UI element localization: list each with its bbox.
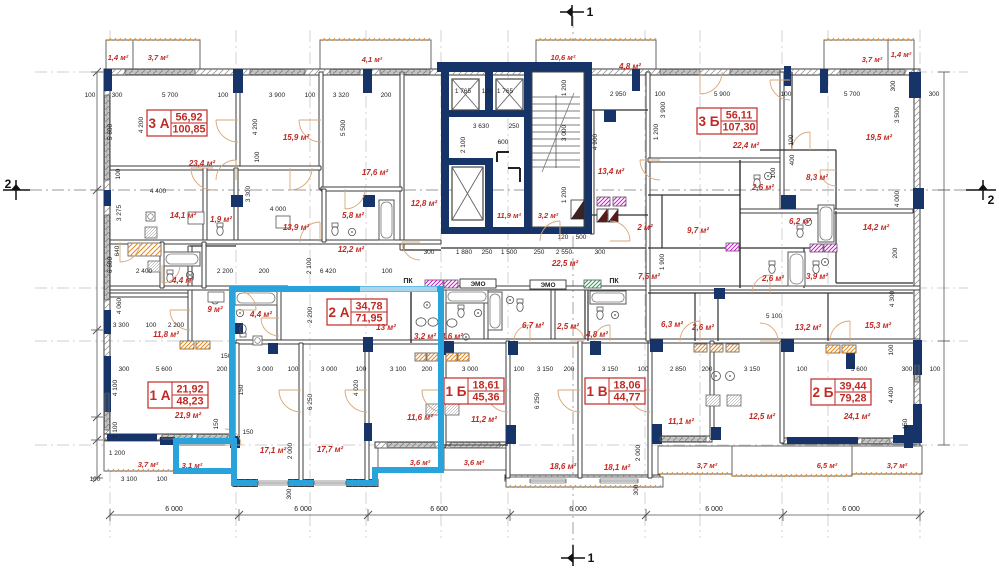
svg-text:13,2 м²: 13,2 м² bbox=[795, 323, 822, 332]
svg-text:1 200: 1 200 bbox=[653, 123, 660, 140]
svg-text:6 420: 6 420 bbox=[320, 268, 337, 275]
svg-text:100: 100 bbox=[305, 92, 316, 99]
svg-text:ПК: ПК bbox=[403, 278, 413, 285]
svg-text:1 200: 1 200 bbox=[561, 186, 568, 203]
svg-text:3 150: 3 150 bbox=[602, 366, 619, 373]
svg-text:100: 100 bbox=[85, 92, 96, 99]
svg-text:1 880: 1 880 bbox=[456, 249, 473, 256]
svg-text:3,7 м²: 3,7 м² bbox=[148, 53, 169, 62]
svg-text:5 600: 5 600 bbox=[107, 123, 114, 140]
svg-text:15,9 м²: 15,9 м² bbox=[283, 133, 310, 142]
svg-text:3 300: 3 300 bbox=[245, 185, 252, 202]
svg-text:2,6 м²: 2,6 м² bbox=[751, 183, 774, 192]
svg-text:3 Б: 3 Б bbox=[699, 114, 720, 129]
svg-text:6 250: 6 250 bbox=[307, 393, 314, 410]
svg-text:3 150: 3 150 bbox=[744, 366, 761, 373]
svg-text:100,85: 100,85 bbox=[172, 124, 205, 136]
svg-text:150: 150 bbox=[238, 384, 245, 395]
svg-text:2 200: 2 200 bbox=[217, 268, 234, 275]
svg-text:2 950: 2 950 bbox=[610, 91, 627, 98]
svg-text:300: 300 bbox=[424, 249, 435, 256]
svg-text:1,4 м²: 1,4 м² bbox=[108, 53, 129, 62]
svg-text:14,1 м²: 14,1 м² bbox=[170, 211, 197, 220]
svg-text:9,7 м²: 9,7 м² bbox=[687, 226, 709, 235]
svg-text:3 100: 3 100 bbox=[121, 476, 138, 483]
svg-text:13,9 м²: 13,9 м² bbox=[283, 223, 310, 232]
svg-text:4 000: 4 000 bbox=[270, 206, 287, 213]
svg-text:3 А: 3 А bbox=[148, 116, 169, 131]
svg-text:5,8 м²: 5,8 м² bbox=[342, 211, 364, 220]
svg-text:11,6 м²: 11,6 м² bbox=[407, 413, 433, 422]
svg-text:1 900: 1 900 bbox=[659, 253, 666, 270]
svg-text:100: 100 bbox=[514, 366, 525, 373]
svg-text:200: 200 bbox=[217, 366, 228, 373]
svg-text:3 275: 3 275 bbox=[116, 204, 123, 221]
svg-text:17,1 м²: 17,1 м² bbox=[260, 446, 287, 455]
svg-text:2 м²: 2 м² bbox=[636, 223, 653, 232]
svg-text:6 600: 6 600 bbox=[430, 506, 448, 513]
svg-text:6 600: 6 600 bbox=[107, 256, 114, 273]
svg-text:2 550: 2 550 bbox=[556, 249, 573, 256]
svg-text:100: 100 bbox=[482, 88, 493, 95]
svg-text:250: 250 bbox=[482, 249, 493, 256]
svg-text:640: 640 bbox=[114, 245, 121, 256]
svg-text:3 000: 3 000 bbox=[321, 366, 338, 373]
svg-text:4 060: 4 060 bbox=[116, 297, 123, 314]
svg-text:4,1 м²: 4,1 м² bbox=[361, 55, 383, 64]
svg-text:300: 300 bbox=[929, 91, 940, 98]
svg-text:1,4 м²: 1,4 м² bbox=[891, 50, 912, 59]
svg-text:2 А: 2 А bbox=[328, 305, 349, 320]
svg-text:3 900: 3 900 bbox=[269, 92, 286, 99]
svg-text:1 500: 1 500 bbox=[501, 249, 518, 256]
svg-text:4 020: 4 020 bbox=[353, 379, 360, 396]
svg-text:2 Б: 2 Б bbox=[813, 385, 834, 400]
svg-text:300: 300 bbox=[902, 366, 913, 373]
svg-text:6 000: 6 000 bbox=[842, 506, 860, 513]
svg-text:6,3 м²: 6,3 м² bbox=[661, 320, 683, 329]
svg-text:3,6 м²: 3,6 м² bbox=[410, 458, 431, 467]
svg-text:2 100: 2 100 bbox=[306, 257, 313, 274]
svg-text:1 В: 1 В bbox=[586, 384, 607, 399]
svg-text:ЭМО: ЭМО bbox=[540, 282, 555, 289]
svg-text:6 000: 6 000 bbox=[294, 506, 312, 513]
svg-text:4,8 м²: 4,8 м² bbox=[585, 330, 608, 339]
svg-text:18,1 м²: 18,1 м² bbox=[604, 463, 631, 472]
svg-text:4 200: 4 200 bbox=[138, 116, 145, 133]
svg-text:300: 300 bbox=[595, 249, 606, 256]
svg-text:100: 100 bbox=[888, 344, 895, 355]
svg-text:600: 600 bbox=[498, 139, 509, 146]
svg-text:4 300: 4 300 bbox=[889, 290, 896, 307]
svg-text:200: 200 bbox=[422, 366, 433, 373]
svg-text:1 765: 1 765 bbox=[497, 88, 514, 95]
svg-text:2,5 м²: 2,5 м² bbox=[556, 322, 579, 331]
svg-text:3 000: 3 000 bbox=[257, 366, 274, 373]
svg-text:300: 300 bbox=[890, 80, 897, 91]
svg-text:3,9 м²: 3,9 м² bbox=[806, 272, 828, 281]
svg-text:6 250: 6 250 bbox=[534, 392, 541, 409]
svg-text:5 500: 5 500 bbox=[340, 119, 347, 136]
svg-text:11,1 м²: 11,1 м² bbox=[668, 417, 694, 426]
svg-text:12,8 м²: 12,8 м² bbox=[411, 199, 438, 208]
svg-text:400: 400 bbox=[789, 154, 796, 165]
svg-text:3,2 м²: 3,2 м² bbox=[414, 332, 436, 341]
svg-text:3 300: 3 300 bbox=[113, 322, 130, 329]
svg-text:4 400: 4 400 bbox=[150, 188, 167, 195]
svg-text:2 100: 2 100 bbox=[460, 136, 467, 153]
svg-text:500: 500 bbox=[576, 234, 587, 241]
svg-text:4 900: 4 900 bbox=[592, 133, 599, 150]
svg-text:39,44: 39,44 bbox=[839, 381, 866, 393]
svg-text:3 000: 3 000 bbox=[462, 366, 479, 373]
svg-text:100: 100 bbox=[157, 476, 168, 483]
svg-text:5 100: 5 100 bbox=[766, 313, 783, 320]
svg-text:100: 100 bbox=[146, 322, 157, 329]
svg-text:200: 200 bbox=[259, 268, 270, 275]
svg-text:1: 1 bbox=[587, 5, 594, 19]
svg-text:22,4 м²: 22,4 м² bbox=[732, 141, 760, 150]
svg-text:250: 250 bbox=[509, 123, 520, 130]
svg-text:3 630: 3 630 bbox=[473, 123, 490, 130]
svg-text:ПК: ПК bbox=[609, 278, 619, 285]
svg-text:12,2 м²: 12,2 м² bbox=[338, 245, 365, 254]
svg-text:2,6 м²: 2,6 м² bbox=[761, 274, 784, 283]
svg-text:150: 150 bbox=[243, 429, 254, 436]
svg-text:100: 100 bbox=[797, 366, 808, 373]
svg-text:6,5 м²: 6,5 м² bbox=[817, 461, 838, 470]
svg-text:3,7 м²: 3,7 м² bbox=[697, 461, 718, 470]
svg-text:79,28: 79,28 bbox=[839, 393, 866, 405]
svg-text:300: 300 bbox=[633, 484, 640, 495]
svg-text:250: 250 bbox=[534, 249, 545, 256]
svg-text:2 850: 2 850 bbox=[670, 366, 687, 373]
svg-text:100: 100 bbox=[788, 134, 795, 145]
svg-text:1 200: 1 200 bbox=[109, 450, 126, 457]
svg-text:11,9 м²: 11,9 м² bbox=[497, 211, 522, 220]
svg-text:100: 100 bbox=[288, 366, 299, 373]
svg-text:150: 150 bbox=[902, 418, 909, 429]
svg-text:2: 2 bbox=[5, 177, 12, 191]
svg-text:100: 100 bbox=[356, 366, 367, 373]
svg-text:6,7 м²: 6,7 м² bbox=[522, 321, 544, 330]
svg-text:19,5 м²: 19,5 м² bbox=[866, 133, 893, 142]
svg-text:120: 120 bbox=[558, 234, 569, 241]
svg-text:100: 100 bbox=[781, 91, 792, 98]
svg-text:150: 150 bbox=[213, 418, 220, 429]
svg-text:5 600: 5 600 bbox=[156, 366, 173, 373]
svg-text:4,4 м²: 4,4 м² bbox=[249, 310, 272, 319]
svg-text:3,7 м²: 3,7 м² bbox=[887, 461, 908, 470]
svg-text:107,30: 107,30 bbox=[722, 122, 755, 134]
svg-text:200: 200 bbox=[564, 366, 575, 373]
svg-text:56,92: 56,92 bbox=[175, 112, 202, 124]
svg-text:21,92: 21,92 bbox=[176, 384, 203, 396]
svg-text:6,2 м²: 6,2 м² bbox=[789, 217, 811, 226]
svg-text:1 765: 1 765 bbox=[455, 88, 472, 95]
svg-text:3 320: 3 320 bbox=[333, 92, 350, 99]
svg-text:ЭМО: ЭМО bbox=[470, 281, 485, 288]
svg-text:5 700: 5 700 bbox=[844, 91, 861, 98]
svg-text:6 000: 6 000 bbox=[569, 506, 587, 513]
svg-text:45,36: 45,36 bbox=[472, 392, 499, 404]
svg-text:100: 100 bbox=[638, 366, 649, 373]
svg-text:2 000: 2 000 bbox=[635, 444, 642, 461]
svg-text:13,4 м²: 13,4 м² bbox=[598, 167, 625, 176]
svg-text:10,6 м²: 10,6 м² bbox=[551, 53, 576, 62]
svg-text:1 200: 1 200 bbox=[561, 79, 568, 96]
svg-text:3 900: 3 900 bbox=[660, 101, 667, 118]
svg-text:17,7 м²: 17,7 м² bbox=[317, 445, 344, 454]
svg-text:100: 100 bbox=[930, 366, 941, 373]
svg-text:18,61: 18,61 bbox=[472, 380, 499, 392]
svg-text:5 700: 5 700 bbox=[162, 92, 179, 99]
svg-text:7,5 м²: 7,5 м² bbox=[638, 272, 660, 281]
svg-text:5 600: 5 600 bbox=[851, 366, 868, 373]
svg-text:11,8 м²: 11,8 м² bbox=[153, 330, 179, 339]
svg-text:300: 300 bbox=[286, 488, 293, 499]
svg-text:23,4 м²: 23,4 м² bbox=[188, 159, 216, 168]
svg-text:100: 100 bbox=[382, 268, 393, 275]
svg-text:4 100: 4 100 bbox=[112, 379, 119, 396]
svg-text:15,3 м²: 15,3 м² bbox=[865, 321, 892, 330]
svg-text:21,9 м²: 21,9 м² bbox=[174, 411, 202, 420]
svg-text:34,78: 34,78 bbox=[355, 301, 382, 313]
svg-text:2: 2 bbox=[988, 193, 995, 207]
svg-text:300: 300 bbox=[119, 366, 130, 373]
svg-text:12,5 м²: 12,5 м² bbox=[749, 412, 776, 421]
svg-text:44,77: 44,77 bbox=[613, 392, 640, 404]
svg-text:13 м²: 13 м² bbox=[376, 323, 396, 332]
svg-text:200: 200 bbox=[702, 366, 713, 373]
svg-text:3,2 м²: 3,2 м² bbox=[538, 211, 559, 220]
svg-text:1 Б: 1 Б bbox=[446, 384, 467, 399]
svg-text:56,11: 56,11 bbox=[726, 110, 752, 122]
svg-text:3,6 м²: 3,6 м² bbox=[464, 458, 485, 467]
svg-text:17,6 м²: 17,6 м² bbox=[362, 168, 389, 177]
svg-text:48,23: 48,23 bbox=[176, 396, 203, 408]
svg-text:6 000: 6 000 bbox=[165, 506, 183, 513]
svg-text:3 150: 3 150 bbox=[537, 366, 554, 373]
svg-text:18,06: 18,06 bbox=[613, 380, 640, 392]
svg-text:4 000: 4 000 bbox=[894, 190, 901, 207]
svg-text:14,2 м²: 14,2 м² bbox=[863, 223, 890, 232]
svg-text:4,4 м²: 4,4 м² bbox=[171, 276, 194, 285]
svg-text:200: 200 bbox=[381, 92, 392, 99]
svg-text:6 000: 6 000 bbox=[705, 506, 723, 513]
svg-text:1: 1 bbox=[588, 551, 595, 565]
svg-text:3 500: 3 500 bbox=[894, 106, 901, 123]
svg-text:9 м²: 9 м² bbox=[207, 305, 223, 314]
svg-text:3,7 м²: 3,7 м² bbox=[138, 460, 159, 469]
svg-text:4 400: 4 400 bbox=[888, 386, 895, 403]
svg-text:100: 100 bbox=[655, 91, 666, 98]
svg-text:2 000: 2 000 bbox=[287, 442, 294, 459]
svg-text:8,3 м²: 8,3 м² bbox=[806, 173, 828, 182]
svg-text:3 100: 3 100 bbox=[390, 366, 407, 373]
svg-text:2 200: 2 200 bbox=[307, 306, 314, 323]
svg-text:300: 300 bbox=[112, 92, 123, 99]
svg-text:4,8 м²: 4,8 м² bbox=[618, 62, 641, 71]
svg-text:3 000: 3 000 bbox=[561, 124, 568, 141]
svg-text:24,1 м²: 24,1 м² bbox=[843, 412, 871, 421]
svg-text:22,5 м²: 22,5 м² bbox=[551, 259, 579, 268]
svg-text:2 200: 2 200 bbox=[168, 322, 185, 329]
svg-text:100: 100 bbox=[218, 92, 229, 99]
svg-text:1,9 м²: 1,9 м² bbox=[210, 215, 232, 224]
svg-text:2,6 м²: 2,6 м² bbox=[691, 323, 714, 332]
svg-text:5 900: 5 900 bbox=[714, 91, 731, 98]
svg-text:4 200: 4 200 bbox=[252, 118, 259, 135]
svg-text:100: 100 bbox=[770, 167, 777, 178]
svg-text:11,2 м²: 11,2 м² bbox=[471, 415, 497, 424]
svg-text:100: 100 bbox=[254, 151, 261, 162]
svg-text:3,7 м²: 3,7 м² bbox=[862, 55, 883, 64]
svg-text:2 400: 2 400 bbox=[136, 268, 153, 275]
svg-text:200: 200 bbox=[892, 247, 899, 258]
svg-text:100: 100 bbox=[115, 168, 122, 179]
svg-text:18,6 м²: 18,6 м² bbox=[550, 462, 577, 471]
svg-text:1 100: 1 100 bbox=[112, 421, 119, 438]
svg-text:1 А: 1 А bbox=[149, 388, 170, 403]
